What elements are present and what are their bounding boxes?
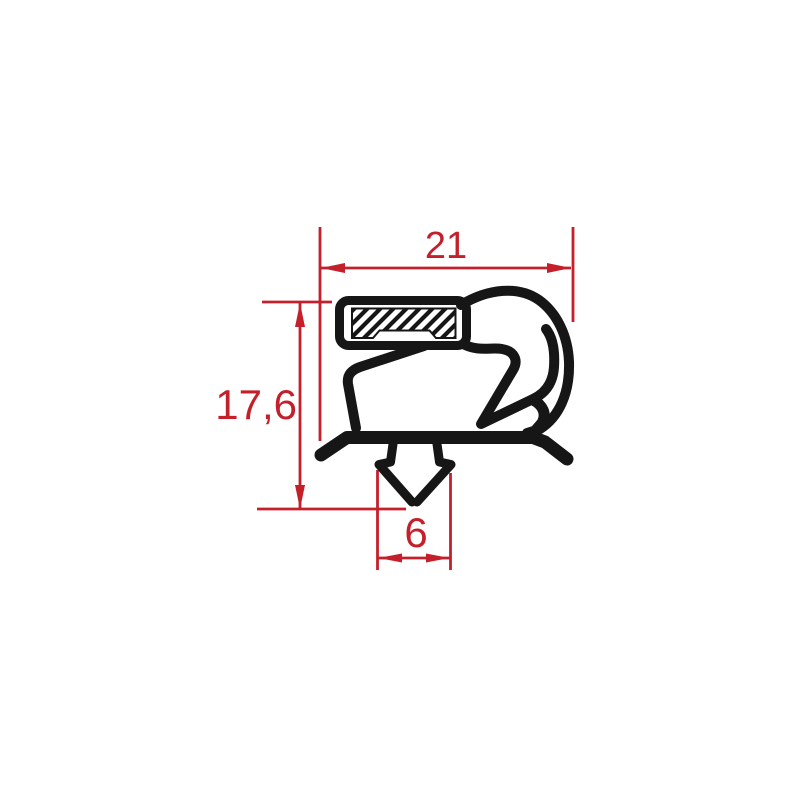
technical-drawing-canvas: 21 17,6 6 bbox=[0, 0, 800, 800]
base-bar bbox=[321, 438, 567, 460]
arrowhead-right-icon bbox=[547, 263, 571, 273]
dimension-label-bottom-width: 6 bbox=[404, 509, 427, 556]
bulb-base-junction bbox=[533, 400, 544, 430]
gasket-profile bbox=[321, 291, 569, 502]
arrowhead-bottom-left-icon bbox=[379, 554, 403, 563]
arrowhead-up-icon bbox=[295, 303, 305, 327]
retaining-dart-left bbox=[379, 444, 412, 502]
chamber-arm bbox=[348, 346, 424, 428]
dimension-bottom-width: 6 bbox=[378, 470, 451, 570]
arrowhead-down-icon bbox=[295, 485, 305, 509]
gasket-profile-drawing: 21 17,6 6 bbox=[0, 0, 800, 800]
arrowhead-bottom-right-icon bbox=[426, 554, 450, 563]
retaining-dart-right bbox=[417, 444, 451, 502]
arrowhead-left-icon bbox=[321, 263, 345, 273]
dimension-label-left-height: 17,6 bbox=[215, 381, 297, 428]
dimension-label-top-width: 21 bbox=[425, 225, 467, 267]
